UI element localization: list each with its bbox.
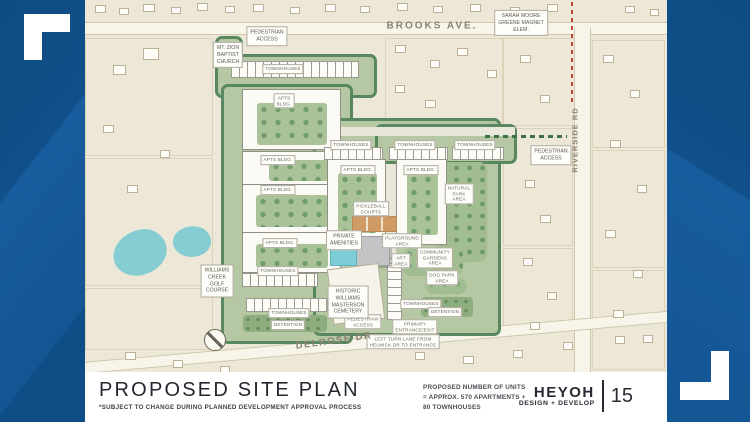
neighborhood-house <box>160 150 170 158</box>
neighborhood-house <box>113 65 126 75</box>
neighborhood-house <box>397 3 408 11</box>
label-apts-w2: APTS BLDG. <box>260 155 295 165</box>
units-note: PROPOSED NUMBER OF UNITS = APPROX. 570 A… <box>423 383 526 413</box>
neighborhood-house <box>540 95 550 103</box>
label-ped-access-north: PEDESTRIANACCESS <box>246 26 287 46</box>
label-community-gardens: COMMUNITYGARDENSAREA <box>417 247 453 268</box>
label-mt-zion-church: MT. ZIONBAPTISTCHURCH <box>213 42 243 68</box>
firm-block: HEYOH DESIGN + DEVELOP 15 <box>519 380 633 412</box>
street-riverside-rd: RIVERSIDE RD <box>571 107 580 172</box>
label-art-area: ARTAREA <box>391 253 410 268</box>
neighborhood-house <box>610 140 621 148</box>
label-private-amenities: PRIVATEAMENITIES <box>326 230 362 250</box>
apts-bldg-nw-courtyard <box>257 103 327 145</box>
neighborhood-house <box>103 125 114 133</box>
title-block: PROPOSED SITE PLAN *SUBJECT TO CHANGE DU… <box>99 379 361 411</box>
page-title: PROPOSED SITE PLAN <box>99 379 361 402</box>
neighborhood-house <box>513 350 523 358</box>
neighborhood-house <box>433 6 443 13</box>
neighborhood-house <box>643 335 653 343</box>
divider <box>602 380 604 412</box>
neighborhood-house <box>395 45 406 53</box>
units-note-line: = APPROX. 570 APARTMENTS + <box>423 393 526 403</box>
label-left-turn-lane: LEFT TURN LANE FROMHELMICK DR TO ENTRANC… <box>367 334 440 349</box>
corner-bracket-icon <box>680 351 729 400</box>
label-townhouses-ne-1: TOWNHOUSES <box>330 140 371 150</box>
title-bar: PROPOSED SITE PLAN *SUBJECT TO CHANGE DU… <box>85 372 667 422</box>
neighborhood-house <box>520 55 531 63</box>
label-apts-w3: APTS BLDG. <box>260 185 295 195</box>
neighborhood-house <box>395 85 405 93</box>
neighborhood-house <box>415 352 425 360</box>
label-apts-nw: APTSBLDG. <box>274 93 295 108</box>
neighborhood-house <box>143 4 155 12</box>
firm-tagline: DESIGN + DEVELOP <box>519 400 595 407</box>
neighborhood-house <box>197 3 208 11</box>
neighborhood-house <box>360 6 370 13</box>
neighborhood-house <box>220 366 230 372</box>
pedestrian-path-east <box>485 135 567 138</box>
page-number: 15 <box>611 385 633 408</box>
neighborhood-house <box>125 352 136 360</box>
brand-band-right <box>667 0 750 422</box>
label-dog-park: DOG PARKAREA <box>426 270 458 285</box>
label-natural-park: NATURALPARKAREA <box>445 183 474 204</box>
page-subtitle: *SUBJECT TO CHANGE DURING PLANNED DEVELO… <box>99 404 361 411</box>
neighborhood-house <box>650 9 659 16</box>
label-sarah-moore-school: SARAH MOOREGREENE MAGNETELEM. <box>494 10 548 36</box>
label-detention-se: DETENTION <box>428 307 462 317</box>
label-ped-access-east: PEDESTRIANACCESS <box>530 145 571 165</box>
neighborhood-house <box>95 5 106 13</box>
units-note-line: 80 TOWNHOUSES <box>423 403 526 413</box>
school-zone-dashed-line <box>571 2 573 102</box>
label-apts-sw: APTS BLDG. <box>262 238 297 248</box>
firm-name: HEYOH <box>519 385 595 401</box>
neighborhood-house <box>325 4 336 12</box>
neighborhood-house <box>173 360 183 368</box>
firm-names: HEYOH DESIGN + DEVELOP <box>519 385 595 408</box>
neighborhood-house <box>457 48 468 56</box>
neighborhood-house <box>143 48 159 60</box>
parcel-outline <box>85 288 213 350</box>
neighborhood-house <box>225 6 235 13</box>
neighborhood-house <box>625 6 635 13</box>
corner-bracket-icon <box>24 14 70 60</box>
neighborhood-house <box>547 292 557 300</box>
neighborhood-house <box>613 310 624 318</box>
neighborhood-house <box>470 4 481 12</box>
neighborhood-house <box>633 270 643 278</box>
label-townhouses-ne-2: TOWNHOUSES <box>394 140 435 150</box>
neighborhood-house <box>463 356 474 364</box>
neighborhood-house <box>525 180 535 188</box>
neighborhood-house <box>637 185 647 193</box>
neighborhood-house <box>540 215 551 223</box>
label-cemetery: HISTORICWILLIAMSMASTERSONCEMETERY <box>328 286 369 319</box>
label-pickleball: PICKLEBALLCOURTS <box>353 201 389 216</box>
neighborhood-house <box>605 230 616 238</box>
neighborhood-house <box>530 322 540 330</box>
site-plan-map: PEDESTRIANACCESSTOWNHOUSESAPTSBLDG.APTS … <box>85 0 667 372</box>
neighborhood-house <box>119 8 129 15</box>
north-compass <box>204 329 226 351</box>
label-detention-sw: DETENTION <box>271 320 305 330</box>
neighborhood-house <box>523 258 533 266</box>
neighborhood-house <box>127 185 138 193</box>
neighborhood-house <box>615 336 625 344</box>
neighborhood-house <box>630 90 640 98</box>
label-townhouses-north: TOWNHOUSES <box>262 64 303 74</box>
label-townhouses-sw-1: TOWNHOUSES <box>257 266 298 276</box>
parcel-outline <box>592 150 665 268</box>
label-primary-entrance: PRIMARYENTRANCE/EXIT <box>392 319 437 334</box>
neighborhood-house <box>487 70 497 78</box>
parcel-outline <box>503 38 575 126</box>
neighborhood-house <box>430 60 440 68</box>
apts-bldg-east-courtyard <box>407 173 438 235</box>
label-townhouses-sw-2: TOWNHOUSES <box>268 308 309 318</box>
neighborhood-house <box>290 7 300 14</box>
apts-bldg-w3-courtyard <box>256 195 328 227</box>
units-note-line: PROPOSED NUMBER OF UNITS <box>423 383 526 393</box>
street-brooks-ave: BROOKS AVE. <box>387 21 478 32</box>
neighborhood-house <box>563 342 573 350</box>
neighborhood-house <box>171 7 181 14</box>
neighborhood-house <box>253 4 264 12</box>
neighborhood-house <box>603 55 614 63</box>
label-townhouses-ne-3: TOWNHOUSES <box>454 140 495 150</box>
label-apts-central: APTS BLDG. <box>340 165 375 175</box>
label-golf-course: WILLIAMSCREEKGOLFCOURSE <box>201 265 234 298</box>
label-apts-east: APTS BLDG. <box>403 165 438 175</box>
parcel-outline <box>503 248 573 328</box>
brand-band-left <box>0 0 85 422</box>
neighborhood-house <box>425 100 436 108</box>
neighborhood-house <box>547 4 558 12</box>
